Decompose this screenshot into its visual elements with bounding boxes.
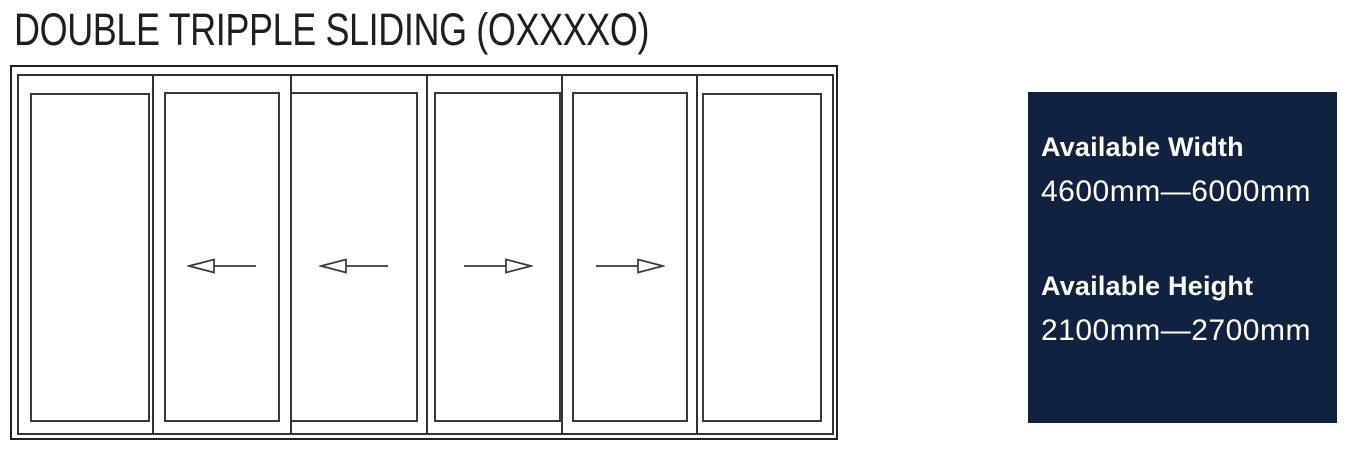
available-width-block: Available Width 4600mm—6000mm xyxy=(1041,130,1319,211)
slide-direction-arrow xyxy=(319,258,389,274)
mullion-line-5 xyxy=(696,76,698,435)
door-panel-sliding-left-1 xyxy=(164,92,280,422)
mullion-line-center xyxy=(426,76,428,435)
door-panel-fixed-left xyxy=(30,93,150,422)
available-width-value: 4600mm—6000mm xyxy=(1041,173,1319,211)
mullion-line-1 xyxy=(152,76,154,435)
slide-direction-arrow xyxy=(187,258,257,274)
mullion-line-4 xyxy=(561,76,563,435)
available-height-value: 2100mm—2700mm xyxy=(1041,312,1319,350)
door-panel-fixed-right xyxy=(702,93,822,422)
page-title: DOUBLE TRIPPLE SLIDING (OXXXXO) xyxy=(14,4,649,56)
door-panel-sliding-right-1 xyxy=(434,92,561,422)
slide-direction-arrow xyxy=(595,258,665,274)
info-panel: Available Width 4600mm—6000mm Available … xyxy=(1028,92,1337,423)
available-height-label: Available Height xyxy=(1041,269,1319,303)
slide-direction-arrow xyxy=(463,258,533,274)
door-diagram xyxy=(10,65,838,440)
available-height-block: Available Height 2100mm—2700mm xyxy=(1041,269,1319,350)
available-width-label: Available Width xyxy=(1041,130,1319,164)
door-panel-sliding-left-2 xyxy=(290,92,418,422)
door-panel-sliding-right-2 xyxy=(572,92,688,422)
